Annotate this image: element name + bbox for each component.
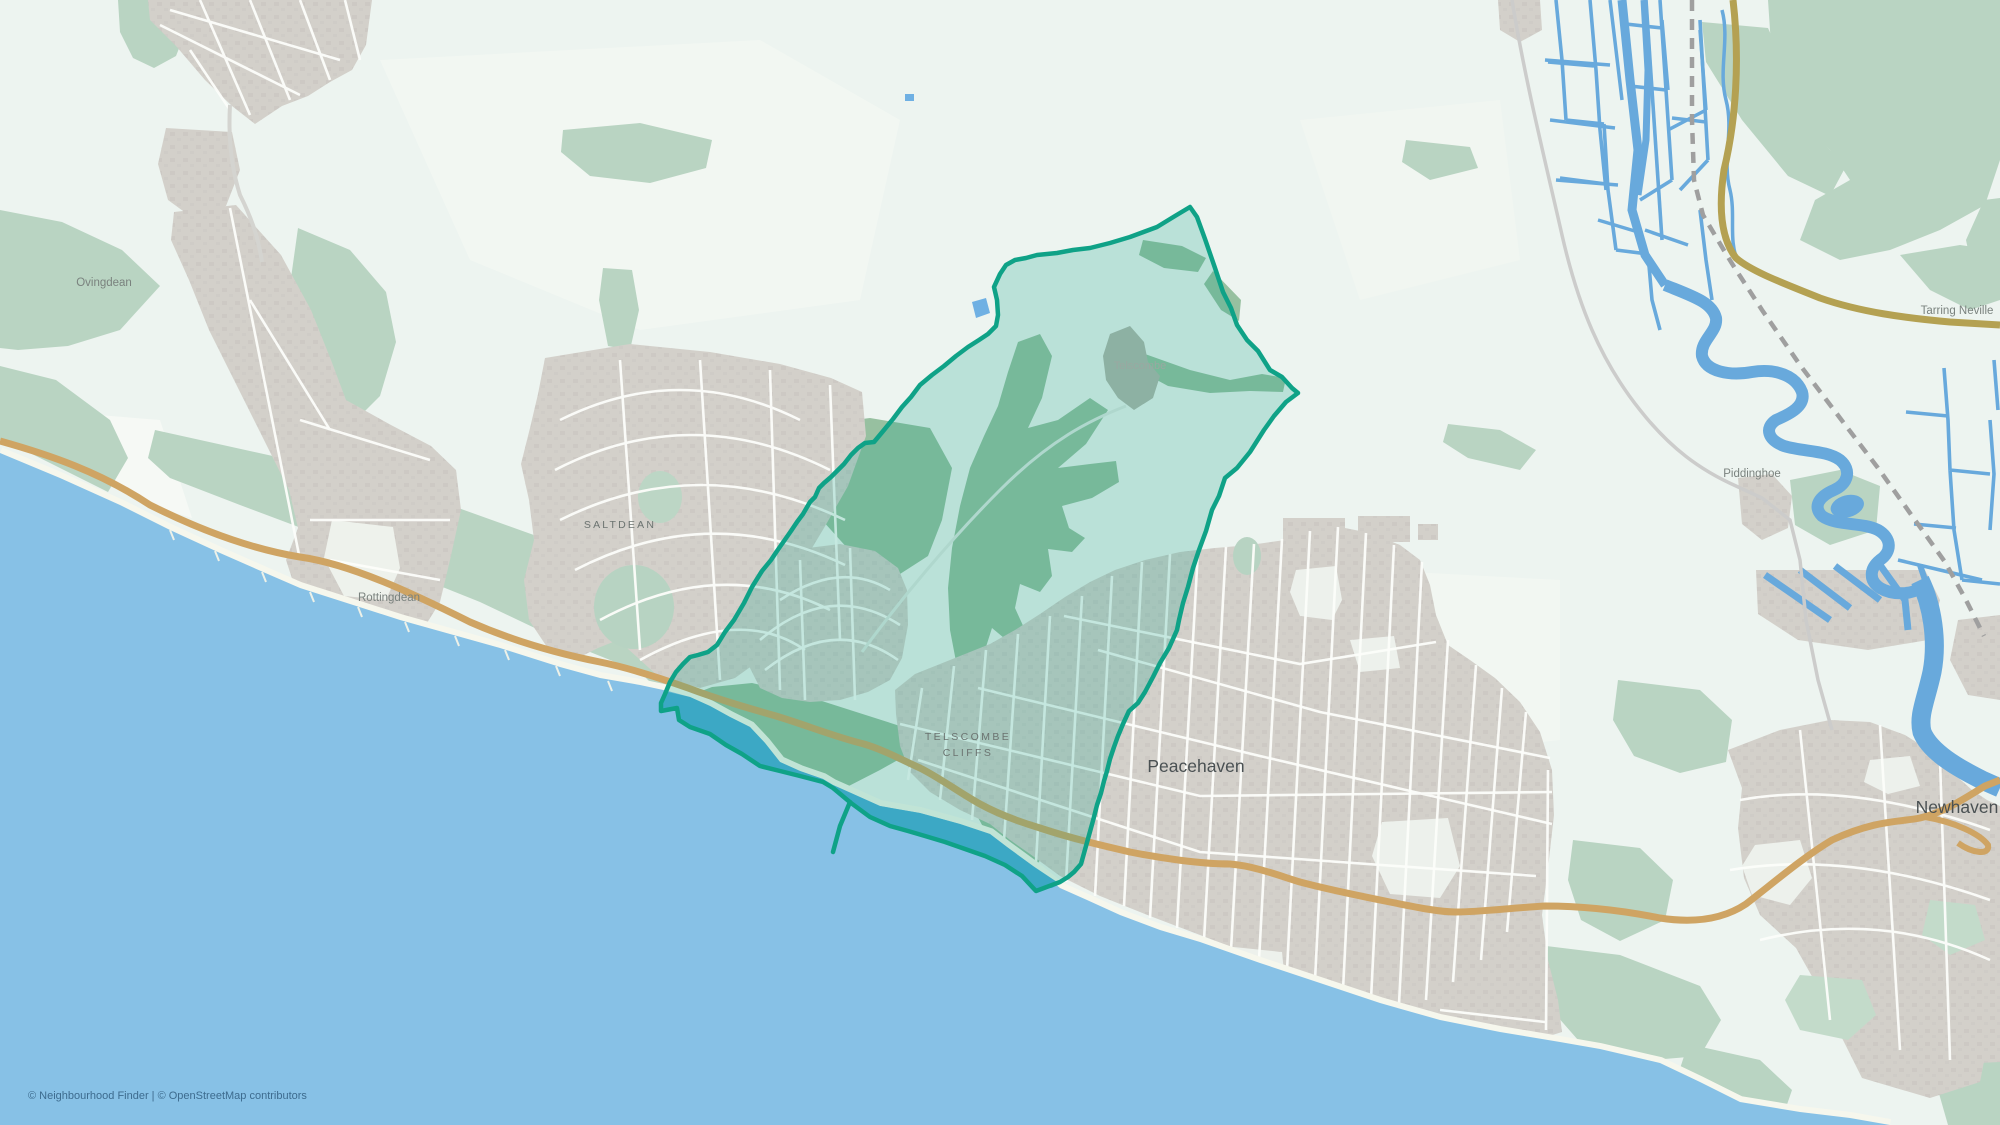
svg-text:Peacehaven: Peacehaven <box>1147 756 1244 776</box>
svg-text:Piddinghoe: Piddinghoe <box>1723 468 1781 480</box>
svg-text:Tarring Neville: Tarring Neville <box>1921 305 1994 317</box>
svg-text:Newhaven: Newhaven <box>1916 797 1999 817</box>
svg-text:Telscombe: Telscombe <box>1114 360 1167 372</box>
svg-text:SALTDEAN: SALTDEAN <box>584 519 656 531</box>
svg-text:Ovingdean: Ovingdean <box>76 277 132 289</box>
svg-text:CLIFFS: CLIFFS <box>943 747 994 759</box>
svg-text:TELSCOMBE: TELSCOMBE <box>925 731 1011 743</box>
svg-text:Rottingdean: Rottingdean <box>358 592 420 604</box>
svg-text:© Neighbourhood Finder | © Ope: © Neighbourhood Finder | © OpenStreetMap… <box>28 1090 307 1102</box>
